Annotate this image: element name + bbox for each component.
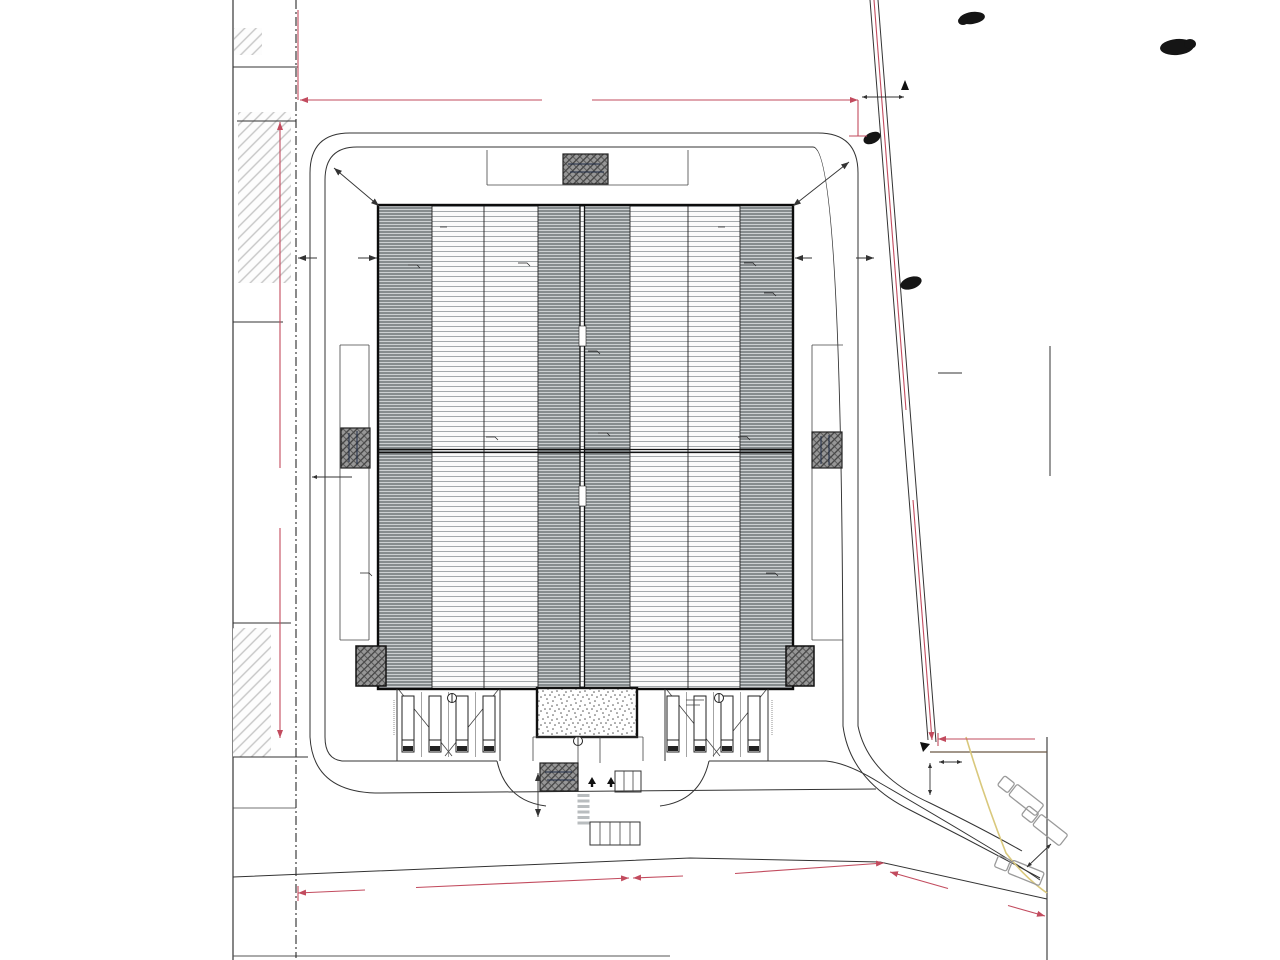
parking-bay-lower — [590, 822, 640, 845]
corner-annex-left — [356, 646, 386, 686]
dock-truck — [483, 696, 495, 752]
parking-bay-upper — [615, 771, 641, 792]
dock-truck — [456, 696, 468, 752]
dock-truck — [721, 696, 733, 752]
public-road-south-edge — [233, 858, 1047, 899]
hatch-band-small — [234, 28, 262, 55]
building-footprint — [360, 205, 793, 689]
boundary-post-mark — [901, 80, 909, 90]
dock-truck — [402, 696, 414, 752]
illegible-parcel-number-blob — [862, 10, 1196, 292]
equipment-pad-entrance — [540, 763, 578, 791]
hydrant-icon — [588, 777, 615, 787]
road-truck — [997, 775, 1044, 816]
road-truck — [994, 854, 1045, 885]
flow-arrow — [920, 742, 930, 752]
left-boundary — [233, 0, 308, 958]
dock-truck — [694, 696, 706, 752]
hatch-band-lower — [233, 628, 271, 757]
road-truck — [1021, 805, 1068, 846]
equipment-pad-top — [563, 154, 608, 184]
dock-truck — [748, 696, 760, 752]
site-plan-drawing — [0, 0, 1280, 960]
hatch-band-upper — [238, 112, 291, 283]
crosswalk — [578, 794, 590, 825]
scan-edge-whiteout — [1051, 340, 1280, 480]
dock-truck — [667, 696, 679, 752]
site-plan-page — [0, 0, 1280, 960]
corner-annex-right — [786, 646, 814, 686]
dock-truck — [429, 696, 441, 752]
equipment-pad-right — [812, 432, 842, 468]
bureaux-block — [537, 688, 637, 737]
equipment-pad-left — [341, 428, 370, 468]
